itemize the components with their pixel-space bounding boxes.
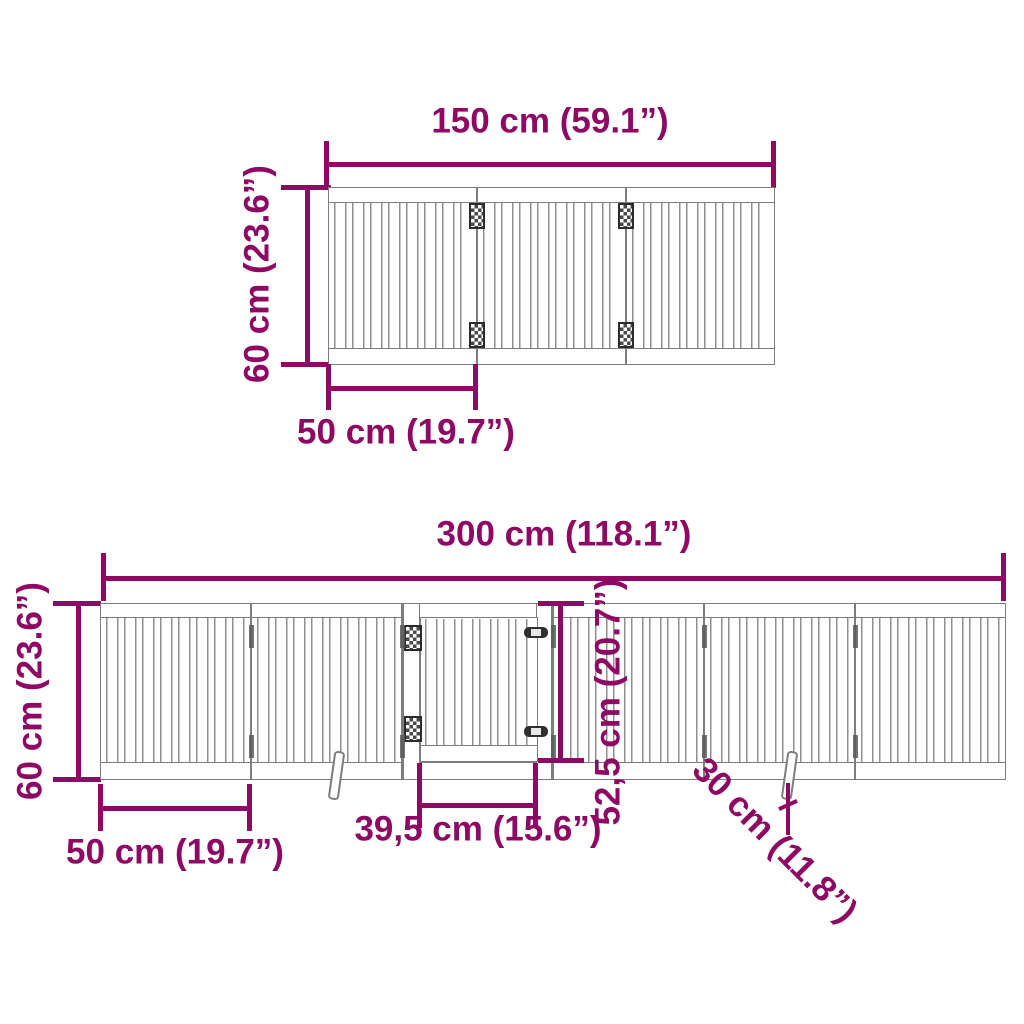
top-gate	[328, 187, 775, 365]
top-gate-height-tick-bottom	[281, 362, 331, 367]
panel-top-rail	[627, 188, 774, 203]
door-height-dimension-line	[558, 603, 563, 762]
bottom-gate-panel-width-label: 50 cm (19.7”)	[66, 835, 284, 870]
bottom-gate-height-dimension-line	[76, 603, 81, 780]
dimension-diagram-canvas: 150 cm (59.1”) 60 cm (23.6”) 50 cm (19.7…	[0, 0, 1024, 1024]
bottom-gate-panel-5	[704, 603, 855, 780]
door-latch-icon	[524, 627, 548, 638]
top-gate-panel-2	[477, 187, 626, 365]
door-slats	[425, 619, 533, 746]
top-gate-height-tick-top	[281, 185, 331, 190]
bottom-gate-panel-4	[553, 603, 704, 780]
door-height-tick-top	[538, 601, 584, 606]
panel-top-rail	[705, 604, 854, 618]
bottom-gate-panel-6	[855, 603, 1006, 780]
panel-bottom-rail	[856, 762, 1005, 779]
bottom-gate-width-tick-right	[1001, 553, 1006, 601]
hinge-icon	[469, 203, 485, 229]
panel-bottom-rail	[403, 762, 552, 779]
top-gate-width-dimension-line	[326, 162, 776, 167]
panel-top-rail	[101, 604, 250, 618]
panel-bottom-rail	[101, 762, 250, 779]
bottom-gate-panel-width-tick-right	[247, 784, 252, 831]
top-gate-panel-width-tick-left	[326, 364, 331, 410]
bottom-gate-width-label: 300 cm (118.1”)	[437, 517, 692, 552]
fold-joint-mark	[702, 625, 707, 648]
panel-top-rail	[554, 604, 703, 618]
top-gate-panel-1	[328, 187, 477, 365]
door-height-label: 52,5 cm (20.7”)	[591, 578, 626, 825]
panel-slats	[483, 203, 620, 348]
bottom-gate-panel-1	[100, 603, 251, 780]
panel-slats	[559, 618, 698, 762]
bottom-gate-width-tick-left	[101, 553, 106, 601]
panel-slats	[710, 618, 849, 762]
hinge-icon	[618, 322, 634, 348]
fold-joint-mark	[400, 735, 405, 758]
top-gate-panel-width-label: 50 cm (19.7”)	[297, 415, 515, 450]
panel-slats	[632, 203, 769, 348]
panel-slats	[257, 618, 396, 762]
panel-slats	[334, 203, 471, 348]
panel-top-rail	[856, 604, 1005, 618]
door-hinge-icon	[404, 716, 422, 742]
fold-joint-mark	[551, 735, 556, 758]
top-gate-height-dimension-line	[305, 187, 310, 365]
fold-joint-mark	[551, 625, 556, 648]
hinge-icon	[618, 203, 634, 229]
top-gate-panel-width-dimension-line	[328, 386, 477, 391]
fold-joint-mark	[249, 625, 254, 648]
bottom-gate-width-dimension-line	[103, 576, 1006, 581]
bottom-gate-height-tick-top	[53, 601, 101, 606]
panel-slats	[106, 618, 245, 762]
panel-top-rail	[252, 604, 401, 618]
panel-top-rail	[329, 188, 476, 203]
panel-bottom-rail	[478, 348, 625, 364]
bottom-gate-panel-2	[251, 603, 402, 780]
panel-top-rail	[478, 188, 625, 203]
panel-bottom-rail	[627, 348, 774, 364]
door-width-label: 39,5 cm (15.6”)	[354, 812, 601, 847]
top-gate-panel-3	[626, 187, 775, 365]
panel-slats	[861, 618, 1000, 762]
door-latch-icon	[524, 726, 548, 737]
top-gate-width-tick-right	[771, 141, 776, 188]
fold-joint-mark	[249, 735, 254, 758]
top-gate-height-label: 60 cm (23.6”)	[240, 165, 275, 383]
top-gate-width-label: 150 cm (59.1”)	[431, 104, 668, 139]
top-gate-width-tick-left	[324, 141, 329, 188]
door-hinge-icon	[404, 625, 422, 651]
panel-bottom-rail	[252, 762, 401, 779]
hinge-icon	[469, 322, 485, 348]
bottom-gate-height-tick-bottom	[53, 777, 101, 782]
top-gate-panel-width-tick-right	[473, 364, 478, 410]
door	[420, 617, 538, 762]
door-width-dimension-line	[420, 803, 538, 808]
panel-bottom-rail	[329, 348, 476, 364]
door-bottom-rail	[421, 745, 537, 761]
fold-joint-mark	[400, 625, 405, 648]
panel-bottom-rail	[554, 762, 703, 779]
panel-top-rail	[403, 604, 552, 618]
bottom-gate-panel-width-dimension-line	[100, 806, 251, 811]
fold-joint-mark	[853, 625, 858, 648]
bottom-gate-height-label: 60 cm (23.6”)	[13, 582, 48, 800]
fold-joint-mark	[853, 735, 858, 758]
door-height-tick-bottom	[538, 758, 584, 763]
bottom-gate-panel-width-tick-left	[98, 784, 103, 831]
